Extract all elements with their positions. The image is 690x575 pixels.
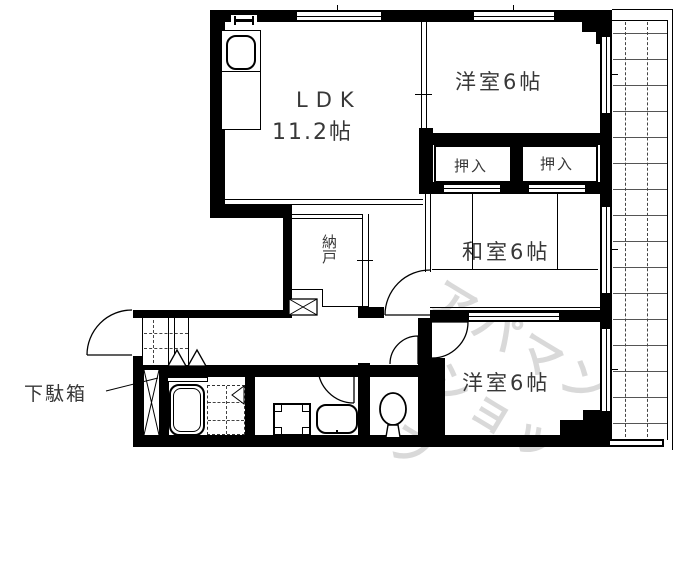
toilet-base	[386, 425, 400, 437]
western-bottom-door-arc	[432, 322, 468, 358]
entrance-step-triangle	[188, 350, 206, 366]
floor-plan: アパマン ショップ	[0, 0, 690, 575]
room-label-closet-right: 押入	[540, 153, 574, 174]
entrance-door-arc	[87, 310, 132, 355]
entrance-step-triangle	[168, 350, 186, 366]
room-label-storage: 納戸	[319, 234, 340, 264]
japanese-room-door-arc	[385, 270, 430, 315]
room-label-ldk: LDK	[296, 88, 362, 112]
toilet-icon	[380, 393, 406, 425]
folding-door-triangle	[232, 386, 244, 404]
plan-linework-overlay	[0, 0, 690, 575]
leader-line	[106, 378, 158, 391]
room-label-western-top: 洋室6帖	[455, 66, 543, 96]
room-label-japanese: 和室6帖	[462, 236, 550, 266]
washroom-door-arc	[318, 367, 354, 403]
room-label-ldk-size: 11.2帖	[272, 114, 353, 146]
toilet-door-arc	[390, 336, 418, 364]
label-shoe-cabinet: 下駄箱	[24, 379, 87, 406]
room-label-western-bottom: 洋室6帖	[462, 367, 550, 397]
room-label-closet-left: 押入	[454, 155, 488, 176]
